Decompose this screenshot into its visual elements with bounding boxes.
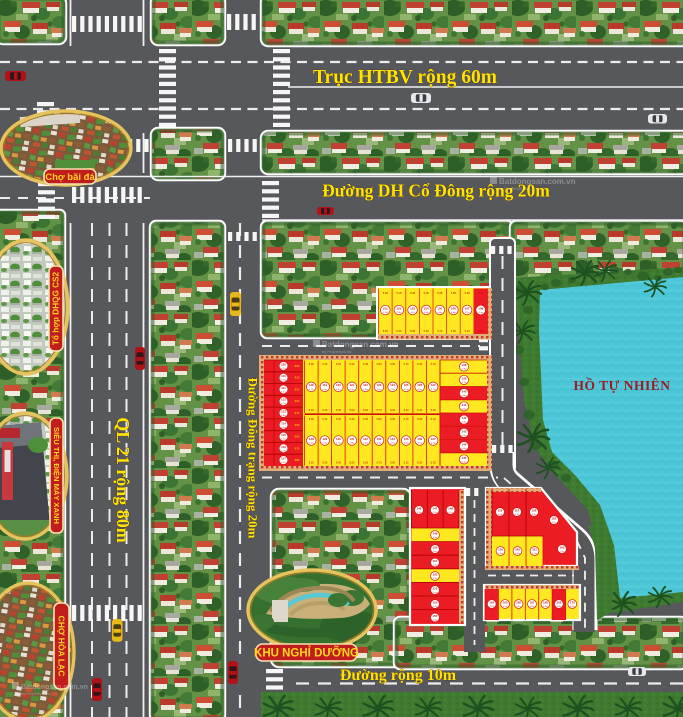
svg-text:155: 155 [433,614,438,618]
svg-text:154: 154 [433,601,438,605]
svg-text:5.70: 5.70 [376,461,382,465]
svg-text:139: 139 [462,376,467,380]
svg-text:115: 115 [281,433,286,437]
svg-text:107: 107 [465,307,470,311]
svg-text:110: 110 [281,374,286,378]
svg-text:164: 164 [489,601,494,605]
svg-text:5.50: 5.50 [376,362,382,366]
svg-text:163: 163 [560,546,565,550]
svg-text:900: 900 [295,364,300,368]
svg-text:5.50: 5.50 [349,461,355,465]
svg-text:162: 162 [552,517,557,521]
svg-text:146: 146 [417,507,422,511]
svg-text:134: 134 [390,437,395,441]
svg-text:Tổ hợp DHQG CS2: Tổ hợp DHQG CS2 [51,271,61,345]
svg-text:5.10: 5.10 [431,417,437,421]
svg-text:Đường Đông trạng rộng 20m: Đường Đông trạng rộng 20m [246,378,261,539]
svg-text:157: 157 [515,509,520,513]
svg-text:5.30: 5.30 [322,408,328,412]
svg-text:108: 108 [478,307,483,311]
svg-text:126: 126 [417,383,422,387]
svg-text:KHU NGHỈ DƯỠNG: KHU NGHỈ DƯỠNG [254,647,359,660]
svg-text:5.70: 5.70 [404,417,410,421]
svg-text:151: 151 [433,559,438,563]
svg-text:130: 130 [336,437,341,441]
svg-text:123: 123 [377,383,382,387]
svg-text:5.60: 5.60 [390,362,396,366]
svg-text:5.00: 5.00 [451,329,457,333]
svg-text:5.10: 5.10 [404,408,410,412]
svg-text:120: 120 [336,383,341,387]
svg-text:5.10: 5.10 [431,362,437,366]
svg-text:150: 150 [433,546,438,550]
svg-text:Trục HTBV rộng 60m: Trục HTBV rộng 60m [313,67,497,88]
svg-text:by PropertyGuru: by PropertyGuru [499,186,528,191]
svg-text:125: 125 [404,383,409,387]
svg-text:168: 168 [543,601,548,605]
svg-text:5.30: 5.30 [349,417,355,421]
svg-text:SIÊU THỊ, ĐIỆN MÁY XANH: SIÊU THỊ, ĐIỆN MÁY XANH [52,427,61,524]
svg-text:5.10: 5.10 [404,461,410,465]
svg-text:CHỢ HÒA LẠC: CHỢ HÒA LẠC [57,616,68,677]
svg-text:5.48: 5.48 [437,291,443,295]
svg-text:153: 153 [433,587,438,591]
svg-text:5.08: 5.08 [383,291,389,295]
svg-text:5.30: 5.30 [349,362,355,366]
svg-text:5.60: 5.60 [424,329,430,333]
svg-text:910: 910 [295,376,300,380]
svg-text:5.50: 5.50 [410,329,416,333]
svg-text:128: 128 [309,437,314,441]
svg-text:133: 133 [377,437,382,441]
svg-text:970: 970 [295,446,300,450]
svg-text:112: 112 [281,398,286,402]
svg-text:169: 169 [556,601,561,605]
svg-text:5.20: 5.20 [417,408,423,412]
svg-text:5.40: 5.40 [363,417,369,421]
svg-text:5.38: 5.38 [424,291,430,295]
svg-text:960: 960 [295,435,300,439]
svg-text:170: 170 [570,601,575,605]
svg-text:127: 127 [431,383,436,387]
svg-text:141: 141 [462,403,467,407]
svg-text:102: 102 [396,307,401,311]
svg-text:5.70: 5.70 [376,408,382,412]
svg-text:116: 116 [281,445,286,449]
svg-text:950: 950 [295,423,300,427]
svg-text:124: 124 [390,383,395,387]
svg-text:113: 113 [281,410,286,414]
svg-text:147: 147 [432,507,437,511]
svg-text:5.00: 5.00 [309,362,315,366]
svg-text:5.10: 5.10 [322,417,328,421]
svg-text:Đường rộng 10m: Đường rộng 10m [340,667,457,684]
svg-text:111: 111 [281,386,286,390]
svg-text:160: 160 [515,548,520,552]
svg-text:980: 980 [295,458,300,462]
svg-text:105: 105 [437,307,442,311]
svg-text:5.58: 5.58 [451,291,457,295]
svg-text:5.30: 5.30 [431,461,437,465]
svg-text:156: 156 [498,509,503,513]
svg-text:117: 117 [281,457,286,461]
svg-text:5.68: 5.68 [465,291,471,295]
svg-text:5.28: 5.28 [410,291,416,295]
svg-text:118: 118 [309,383,314,387]
svg-text:5.00: 5.00 [309,417,315,421]
svg-text:5.20: 5.20 [336,362,342,366]
svg-text:152: 152 [433,573,438,577]
svg-text:165: 165 [503,601,508,605]
svg-text:135: 135 [404,437,409,441]
svg-text:167: 167 [530,601,535,605]
svg-text:5.00: 5.00 [417,417,423,421]
svg-text:140: 140 [462,390,467,394]
svg-text:5.78: 5.78 [478,291,484,295]
svg-text:119: 119 [322,383,327,387]
svg-text:148: 148 [448,507,453,511]
svg-text:143: 143 [462,429,467,433]
svg-text:Batdongsan.com.vn: Batdongsan.com.vn [499,177,576,186]
svg-text:5.40: 5.40 [363,362,369,366]
svg-text:5.10: 5.10 [465,329,471,333]
svg-text:5.70: 5.70 [404,362,410,366]
svg-text:101: 101 [383,307,388,311]
svg-text:138: 138 [462,363,467,367]
svg-text:5.70: 5.70 [437,329,443,333]
svg-text:109: 109 [281,362,286,366]
svg-text:5.30: 5.30 [383,329,389,333]
svg-text:HỒ TỰ NHIÊN: HỒ TỰ NHIÊN [573,378,670,393]
svg-text:158: 158 [532,509,537,513]
svg-text:137: 137 [431,437,436,441]
svg-text:5.00: 5.00 [390,461,396,465]
svg-text:121: 121 [349,383,354,387]
svg-text:Batdongsan.com.vn: Batdongsan.com.vn [21,684,88,691]
svg-text:5.50: 5.50 [349,408,355,412]
svg-text:5.00: 5.00 [390,408,396,412]
svg-text:5.40: 5.40 [396,329,402,333]
svg-text:QL 21 rộng 80m: QL 21 rộng 80m [113,417,133,543]
svg-text:129: 129 [322,437,327,441]
svg-text:920: 920 [295,387,300,391]
svg-text:144: 144 [462,443,467,447]
svg-text:104: 104 [424,307,429,311]
svg-text:142: 142 [462,416,467,420]
svg-text:930: 930 [295,399,300,403]
svg-text:103: 103 [410,307,415,311]
svg-text:5.50: 5.50 [376,417,382,421]
svg-text:5.20: 5.20 [478,329,484,333]
svg-text:Chợ bãi đá: Chợ bãi đá [45,172,95,183]
svg-text:161: 161 [532,548,537,552]
svg-text:166: 166 [516,601,521,605]
svg-text:5.60: 5.60 [363,408,369,412]
svg-text:by PropertyGuru: by PropertyGuru [322,349,351,354]
svg-text:132: 132 [363,437,368,441]
svg-text:5.40: 5.40 [336,461,342,465]
svg-text:136: 136 [417,437,422,441]
svg-text:114: 114 [281,421,286,425]
svg-text:106: 106 [451,307,456,311]
svg-text:5.60: 5.60 [363,461,369,465]
svg-text:by PropertyGuru: by PropertyGuru [21,691,50,696]
svg-text:149: 149 [433,532,438,536]
svg-text:131: 131 [349,437,354,441]
svg-text:5.20: 5.20 [309,408,315,412]
svg-text:940: 940 [295,411,300,415]
svg-text:5.30: 5.30 [322,461,328,465]
svg-text:5.60: 5.60 [390,417,396,421]
svg-text:159: 159 [498,548,503,552]
svg-text:5.40: 5.40 [336,408,342,412]
svg-text:145: 145 [462,456,467,460]
svg-text:5.20: 5.20 [417,461,423,465]
svg-text:5.30: 5.30 [431,408,437,412]
svg-text:5.00: 5.00 [417,362,423,366]
svg-text:5.18: 5.18 [396,291,402,295]
svg-text:Batdongsan.com.vn: Batdongsan.com.vn [322,340,399,349]
svg-text:5.10: 5.10 [322,362,328,366]
svg-text:5.20: 5.20 [309,461,315,465]
svg-text:5.20: 5.20 [336,417,342,421]
svg-text:122: 122 [363,383,368,387]
